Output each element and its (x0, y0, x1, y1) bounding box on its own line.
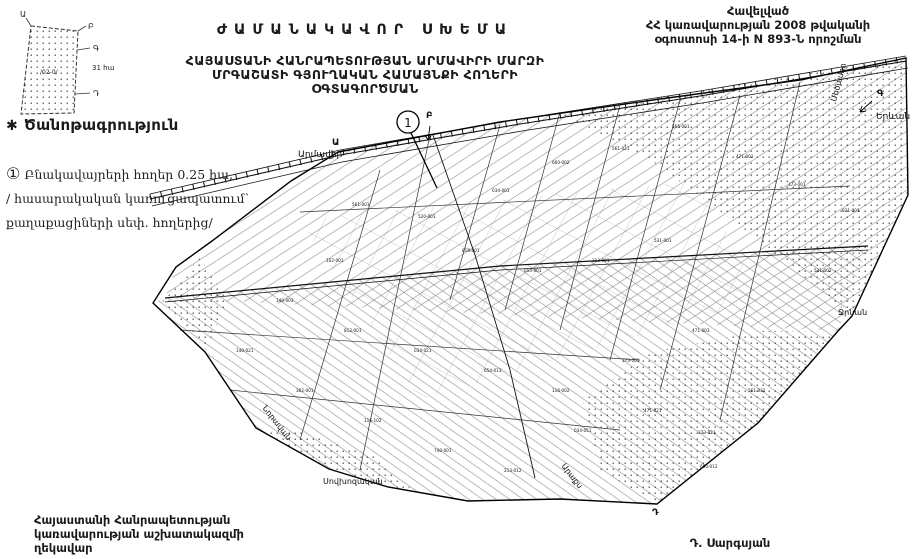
legend-heading: ✱Ծանոթագրություն (6, 116, 256, 134)
boundary-inset-diagram: Ա Բ Գ Դ 31 հա /02-0/ (6, 6, 118, 124)
annex-line1: Հավելված (618, 4, 898, 18)
asterisk-icon: ✱ (6, 118, 18, 134)
map-subtitle-line1: ՀԱՅԱՍՏԱՆԻ ՀԱՆՐԱՊԵՏՈՒԹՅԱՆ ԱՐՄԱՎԻՐԻ ՄԱՐԶԻ (130, 54, 600, 68)
parcel-code: 812-001 (344, 328, 362, 333)
legend-item-1: ①Բնակավայրերի հողեր 0.25 հա, / հասարակակ… (6, 162, 256, 235)
inset-area-label: 31 հա (92, 64, 115, 72)
parcel-code: 034-051 (574, 428, 592, 433)
parcel-code: 660-002 (552, 160, 570, 165)
title-block: ԺԱՄԱՆԱԿԱՎՈՐ ՍԽԵՄԱ ՀԱՅԱՍՏԱՆԻ ՀԱՆՐԱՊԵՏՈՒԹՅ… (130, 22, 600, 96)
parcel-code: 102-001 (326, 258, 344, 263)
parcel-code: 213-001 (592, 258, 610, 263)
parcel-code: 140-003 (276, 298, 294, 303)
map-label-vertex-b: Բ (426, 111, 433, 121)
parcel-code: 373-021 (698, 430, 716, 435)
parcel-code: 034-021 (414, 348, 432, 353)
annex-line2: ՀՀ կառավարության 2008 թվականի (618, 18, 898, 32)
parcel-code: 565-001 (672, 124, 690, 129)
parcel-code: 471-021 (644, 408, 662, 413)
map-label-jrnan: Ջրնան (838, 308, 867, 317)
signature-line1: Հայաստանի Հանրապետության (34, 513, 314, 527)
map-subtitle-line2: ՄՐԳԱՇԱՏԻ ԳՅՈՒՂԱԿԱՆ ՀԱՄԱՅՆՔԻ ՀՈՂԵՐԻ (130, 68, 600, 82)
parcel-code: 561-031 (748, 388, 766, 393)
inset-vertex-c: Գ (93, 44, 99, 53)
legend-item-line1: Բնակավայրերի հողեր 0.25 հա, (24, 167, 233, 182)
signature-title-block: Հայաստանի Հանրապետության կառավարության ա… (34, 513, 314, 555)
parcel-code: 660-012 (700, 464, 718, 469)
map-subtitle-line3: ՕԳՏԱԳՈՐԾՄԱՆ (130, 82, 600, 96)
map-label-sovkhozakan: Սովխոզական (323, 477, 383, 486)
map-title: ԺԱՄԱՆԱԿԱՎՈՐ ՍԽԵՄԱ (130, 22, 600, 38)
parcel-code: 531-001 (654, 238, 672, 243)
parcel-code: 654-001 (524, 268, 542, 273)
marker-number: 1 (404, 116, 412, 130)
parcel-code: 471-003 (692, 328, 710, 333)
parcel-code: 373-005 (622, 358, 640, 363)
parcel-code: 531-002 (814, 268, 832, 273)
annex-line3: օգոստոսի 14-ի N 893-Ն որոշման (618, 32, 898, 46)
inset-vertex-a: Ա (20, 10, 26, 19)
parcel-code: 740-001 (434, 448, 452, 453)
signature-line2: կառավարության աշխատակազմի (34, 527, 314, 541)
parcel-code: 654-013 (484, 368, 502, 373)
inset-parcel-code: /02-0/ (40, 69, 59, 76)
parcel-code: 818-001 (462, 248, 480, 253)
parcel-code: 520-001 (418, 214, 436, 219)
map-label-armavir: Արմավիր (298, 150, 342, 160)
parcel-code: 821-001 (842, 208, 860, 213)
map-label-yerevan: Երևան (876, 112, 910, 122)
parcel-code: 116-102 (364, 418, 382, 423)
parcel-code: 116-002 (552, 388, 570, 393)
scanned-map-page: 1 ԱրմավիրՄեծամորԵրևանՋրնանՆորավանՍովխոզա… (0, 0, 912, 559)
map-label-vertex-c: Գ (877, 89, 884, 99)
signature-line3: ղեկավար (34, 541, 314, 555)
parcel-code: 034-001 (492, 188, 510, 193)
parcel-code: 373-001 (788, 182, 806, 187)
circled-one-icon: ① (6, 164, 20, 183)
legend-heading-text: Ծանոթագրություն (24, 116, 179, 134)
map-label-vertex-d: Դ (652, 508, 659, 518)
map-label-vertex-a: Ա (332, 138, 339, 148)
signature-name: Դ. Սարգսյան (640, 536, 820, 550)
parcel-code: 561-021 (612, 146, 630, 151)
inset-vertex-d: Դ (93, 89, 99, 98)
parcel-code: 140-021 (236, 348, 254, 353)
parcel-code: 213-012 (504, 468, 522, 473)
inset-vertex-b: Բ (88, 22, 94, 31)
legend-item-line3: քաղաքացիների սեփ. հողերից/ (6, 211, 256, 235)
parcel-code: 561-001 (352, 202, 370, 207)
parcel-code: 471-001 (736, 154, 754, 159)
annex-block: Հավելված ՀՀ կառավարության 2008 թվականի օ… (618, 4, 898, 46)
legend-block: ✱Ծանոթագրություն ①Բնակավայրերի հողեր 0.2… (6, 116, 256, 235)
parcel-code: 302-001 (296, 388, 314, 393)
legend-item-line2: / հասարակական կառուցապատում՝ (6, 187, 256, 211)
